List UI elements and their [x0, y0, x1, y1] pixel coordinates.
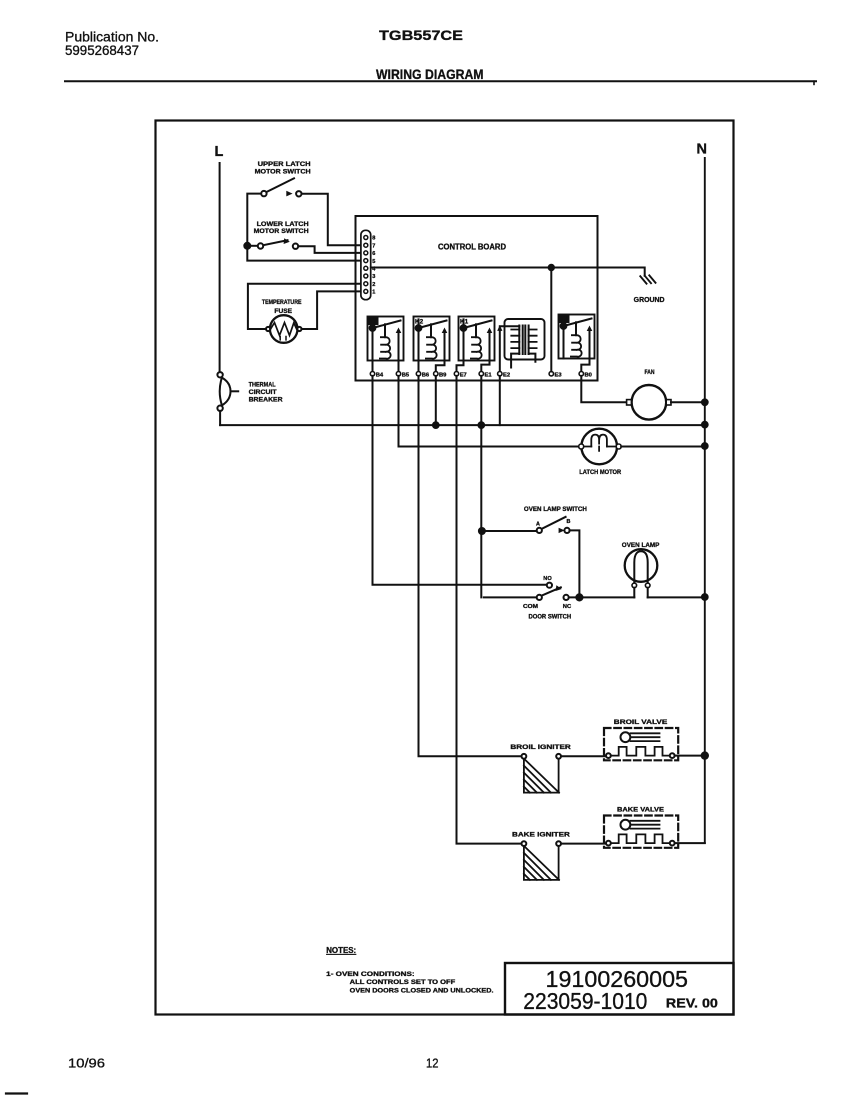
svg-text:8: 8 [372, 236, 375, 242]
svg-text:6: 6 [372, 251, 375, 257]
svg-text:5995268437: 5995268437 [65, 43, 139, 58]
svg-text:N: N [697, 142, 707, 158]
svg-text:B9: B9 [439, 372, 447, 378]
svg-text:1: 1 [372, 290, 375, 296]
svg-text:10/96: 10/96 [68, 1056, 105, 1071]
svg-text:B0: B0 [585, 372, 592, 378]
svg-text:UPPER LATCH: UPPER LATCH [258, 161, 311, 168]
svg-text:E2: E2 [503, 372, 510, 378]
svg-text:LOWER LATCH: LOWER LATCH [257, 221, 309, 228]
svg-text:LATCH MOTOR: LATCH MOTOR [579, 469, 621, 476]
svg-text:BREAKER: BREAKER [249, 397, 283, 404]
svg-text:OVEN DOORS CLOSED AND UNLOCKED: OVEN DOORS CLOSED AND UNLOCKED. [350, 987, 494, 994]
svg-text:TEMPERATURE: TEMPERATURE [262, 299, 302, 306]
svg-text:5: 5 [372, 259, 375, 265]
svg-text:TGB557CE: TGB557CE [379, 27, 463, 43]
svg-text:1- OVEN CONDITIONS:: 1- OVEN CONDITIONS: [326, 971, 414, 978]
svg-text:L: L [215, 144, 224, 160]
svg-text:E7: E7 [460, 372, 467, 378]
svg-text:ALL CONTROLS SET TO OFF: ALL CONTROLS SET TO OFF [350, 979, 456, 986]
svg-text:NC: NC [563, 604, 571, 610]
svg-text:B4: B4 [376, 372, 384, 378]
svg-text:GROUND: GROUND [634, 297, 665, 304]
svg-text:MOTOR SWITCH: MOTOR SWITCH [255, 169, 311, 176]
svg-text:COM: COM [523, 604, 539, 610]
svg-text:E3: E3 [555, 372, 563, 378]
svg-text:CONTROL BOARD: CONTROL BOARD [438, 243, 506, 252]
svg-text:12: 12 [426, 1056, 439, 1071]
svg-text:B5: B5 [402, 372, 410, 378]
svg-text:REV. 00: REV. 00 [666, 996, 718, 1010]
svg-text:MOTOR SWITCH: MOTOR SWITCH [254, 228, 309, 235]
svg-text:BAKE IGNITER: BAKE IGNITER [512, 831, 570, 838]
svg-text:FAN: FAN [645, 369, 655, 376]
svg-text:CIRCUIT: CIRCUIT [249, 389, 278, 396]
svg-text:B6: B6 [422, 372, 430, 378]
svg-text:3: 3 [372, 274, 375, 280]
svg-text:NOTES:: NOTES: [326, 946, 356, 955]
svg-text:B: B [567, 519, 571, 525]
svg-text:2: 2 [372, 282, 375, 288]
svg-text:223059-1010: 223059-1010 [523, 988, 647, 1014]
svg-text:7: 7 [372, 243, 375, 249]
svg-text:OVEN LAMP: OVEN LAMP [622, 542, 660, 549]
svg-text:BROIL VALVE: BROIL VALVE [614, 719, 668, 726]
svg-text:E1: E1 [485, 372, 493, 378]
svg-text:THERMAL: THERMAL [249, 382, 276, 389]
svg-text:A: A [536, 522, 540, 528]
svg-text:NO: NO [543, 576, 551, 582]
svg-text:OVEN LAMP SWITCH: OVEN LAMP SWITCH [524, 506, 587, 513]
svg-text:DOOR SWITCH: DOOR SWITCH [529, 614, 572, 621]
svg-text:BAKE VALVE: BAKE VALVE [617, 806, 665, 813]
svg-text:BROIL IGNITER: BROIL IGNITER [510, 744, 571, 751]
svg-text:FUSE: FUSE [274, 308, 292, 315]
